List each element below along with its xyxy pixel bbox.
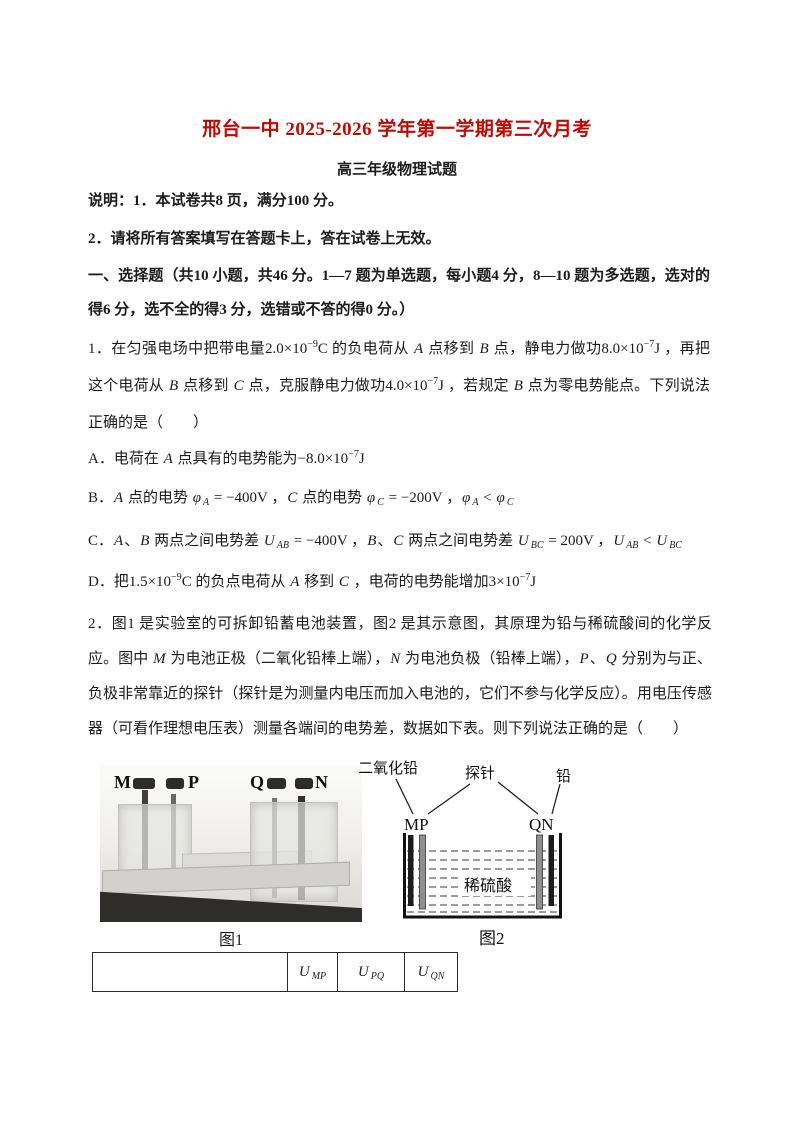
fig2-label-lead-dioxide: 二氧化铅: [358, 760, 418, 777]
question-1-option-c: C．A、B 两点之间电势差 UAB = −400V ，B、C 两点之间电势差 U…: [88, 529, 728, 555]
question-1-option-a: A．电荷在 A 点具有的电势能为−8.0×10−7J: [88, 447, 728, 473]
electrode-rod-n: [549, 835, 555, 906]
terminal-knob-p: [166, 778, 184, 789]
photo-label-n: N: [315, 772, 328, 793]
notes-line-2: 2．请将所有答案填写在答题卡上，答在试卷上无效。: [88, 227, 710, 248]
probe-rod-p: [420, 835, 426, 909]
probe-rod-q: [537, 835, 543, 909]
fig2-label-probe: 探针: [465, 765, 495, 782]
table-cell-empty: [93, 953, 288, 992]
figure-1-caption: 图1: [100, 926, 362, 950]
voltage-table: UMP UPQ UQN: [92, 952, 458, 992]
table-header-ump: UMP: [288, 953, 338, 992]
fig2-label-qn: QN: [529, 815, 554, 834]
fig2-label-acid: 稀硫酸: [464, 877, 512, 895]
leader-lines: [396, 779, 560, 814]
figure-1-photo: M P Q N: [100, 764, 362, 922]
table-header-row: UMP UPQ UQN: [93, 953, 458, 992]
figure-2-diagram: 二氧化铅 探针 铅 MP QN 稀硫酸 图2: [358, 752, 668, 952]
electrode-rod-m: [408, 835, 414, 906]
leader-line-lead: [552, 784, 560, 814]
notes-line-1: 说明：1．本试卷共8 页，满分100 分。: [88, 189, 710, 210]
exam-page: 邢台一中 2025-2026 学年第一学期第三次月考 高三年级物理试题 说明：1…: [0, 0, 794, 1123]
terminal-knob-m: [133, 778, 155, 789]
section-header: 一、选择题（共10 小题，共46 分。1—7 题为单选题，每小题4 分，8—10…: [88, 259, 710, 327]
exam-title: 邢台一中 2025-2026 学年第一学期第三次月考: [0, 114, 794, 141]
photo-label-q: Q: [250, 772, 264, 793]
question-1-stem: 1．在匀强电场中把带电量2.0×10−9C 的负电荷从 A 点移到 B 点，静电…: [88, 331, 710, 442]
photo-label-m: M: [114, 772, 131, 793]
fig2-label-mp: MP: [404, 815, 429, 834]
leader-line-probe-left: [428, 784, 470, 814]
exam-subtitle: 高三年级物理试题: [0, 158, 794, 179]
terminal-knob-q: [267, 778, 286, 789]
question-2-stem: 2．图1 是实验室的可拆卸铅蓄电池装置，图2 是其示意图，其原理为铅与稀硫酸间的…: [88, 607, 712, 747]
terminal-knob-n: [295, 778, 313, 789]
question-1-option-b: B．A 点的电势 φA = −400V ，C 点的电势 φC = −200V ，…: [88, 486, 728, 512]
table-header-uqn: UQN: [405, 953, 458, 992]
figure-2-caption: 图2: [479, 929, 505, 948]
table-header-upq: UPQ: [338, 953, 405, 992]
leader-line-probe-right: [498, 782, 538, 814]
question-1-option-d: D．把1.5×10−9C 的负点电荷从 A 移到 C ，电荷的电势能增加3×10…: [88, 570, 728, 596]
leader-line-lead-dioxide: [396, 779, 413, 814]
photo-label-p: P: [188, 772, 199, 793]
fig2-label-lead: 铅: [556, 768, 571, 785]
